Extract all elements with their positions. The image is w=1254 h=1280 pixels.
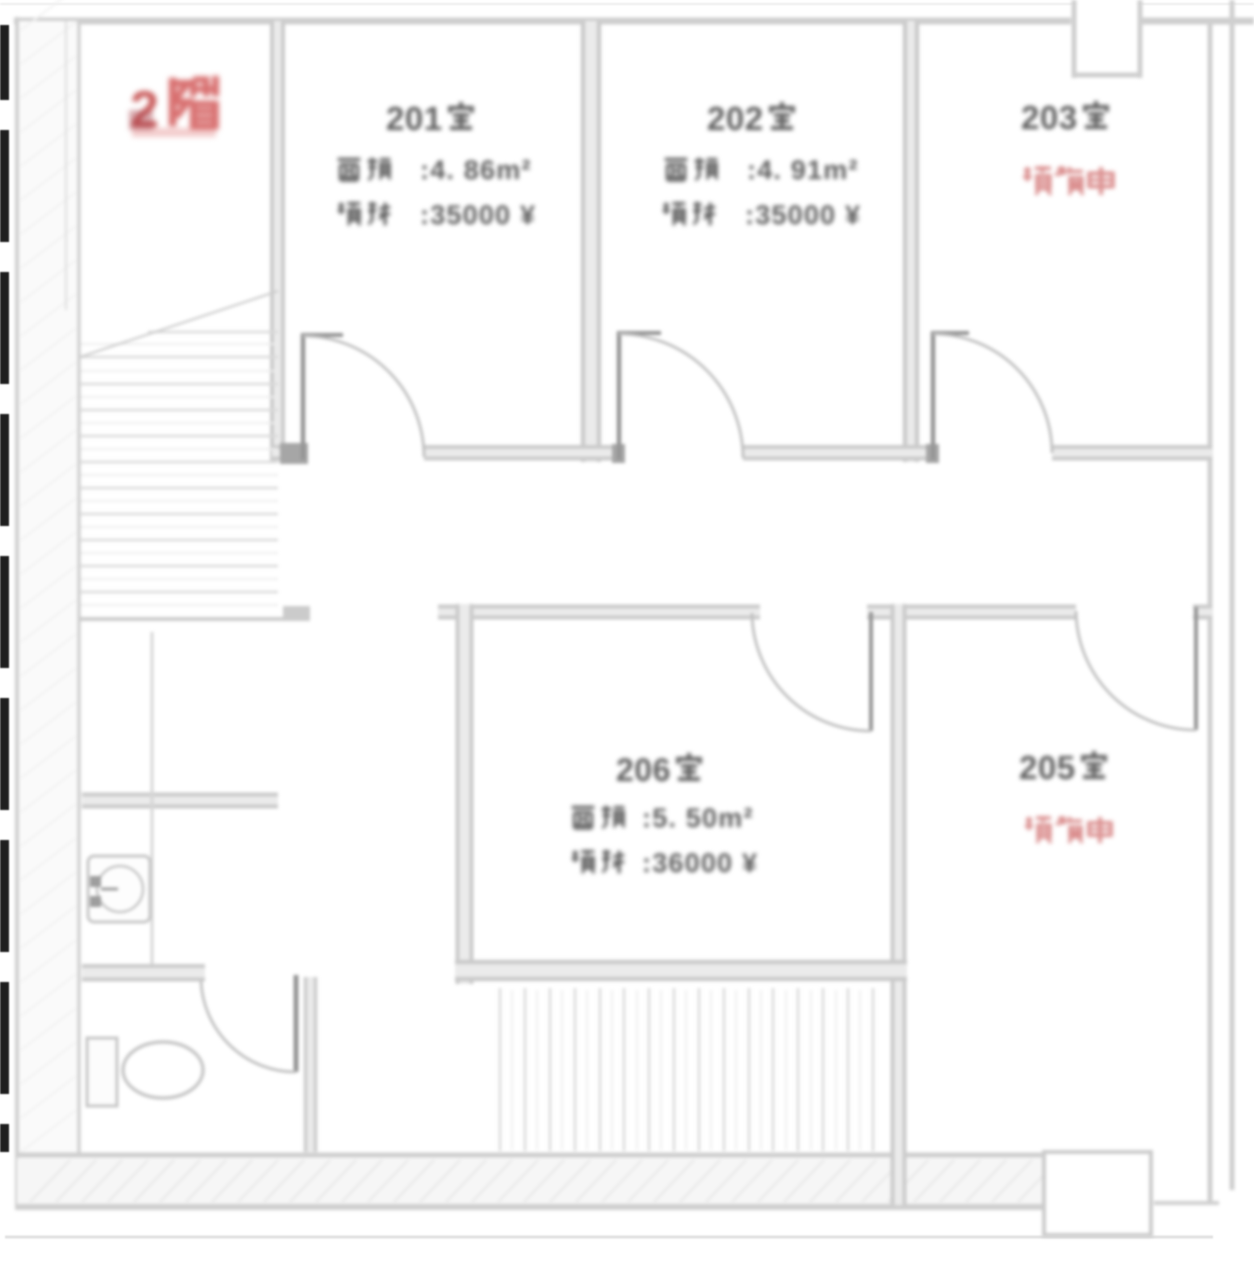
svg-text::36000 ¥: :36000 ¥	[642, 848, 758, 878]
svg-text::4. 91m²: :4. 91m²	[747, 155, 859, 185]
svg-text:201: 201	[386, 100, 443, 137]
svg-text::35000 ¥: :35000 ¥	[420, 200, 536, 230]
svg-text:205: 205	[1019, 749, 1076, 786]
svg-text::4. 86m²: :4. 86m²	[420, 155, 532, 185]
svg-text:203: 203	[1021, 99, 1078, 136]
svg-text::35000 ¥: :35000 ¥	[745, 200, 861, 230]
svg-text::5. 50m²: :5. 50m²	[642, 803, 754, 833]
svg-text:202: 202	[707, 100, 764, 137]
svg-text:206: 206	[616, 752, 671, 788]
